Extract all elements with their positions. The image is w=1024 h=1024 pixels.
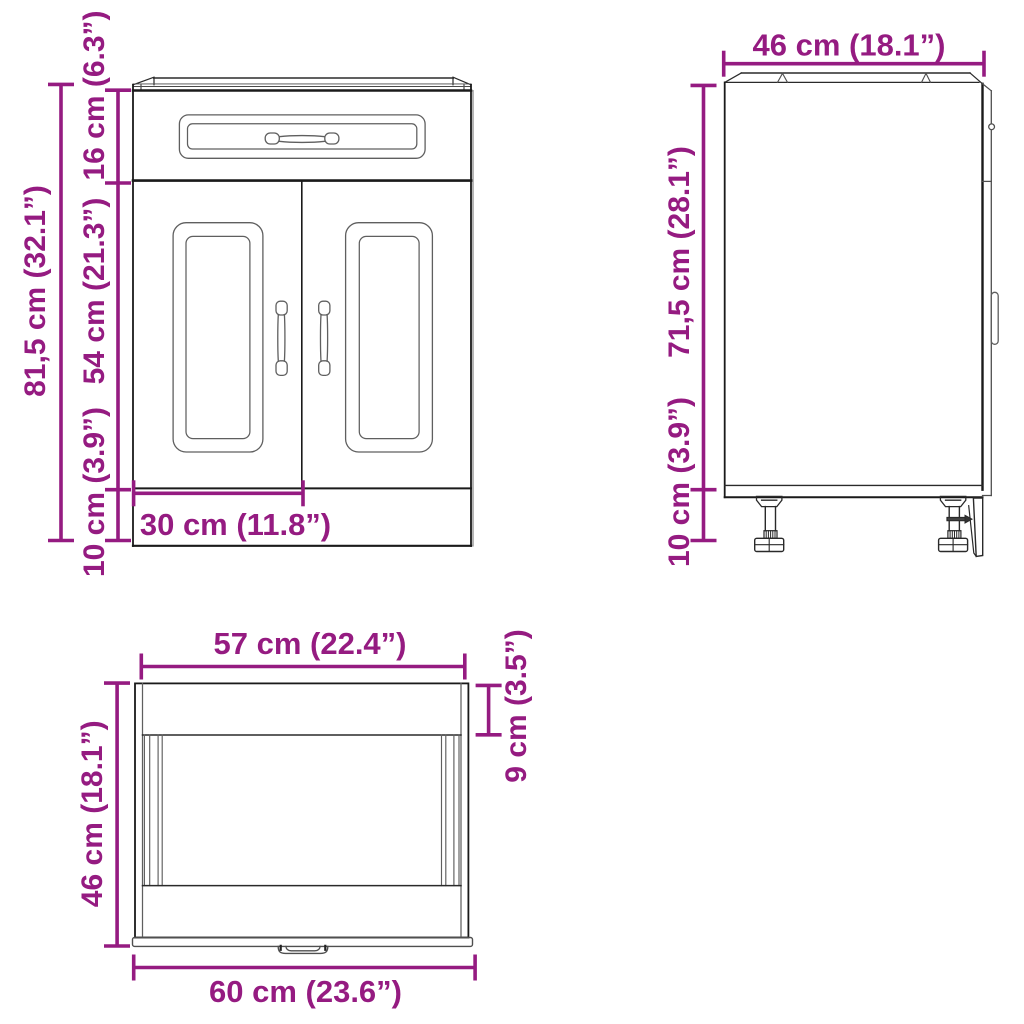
svg-text:30 cm (11.8”): 30 cm (11.8”) bbox=[140, 507, 331, 542]
svg-text:10 cm (3.9”): 10 cm (3.9”) bbox=[78, 407, 111, 577]
svg-text:57 cm (22.4”): 57 cm (22.4”) bbox=[214, 626, 407, 661]
svg-text:10 cm (3.9”): 10 cm (3.9”) bbox=[663, 397, 696, 567]
svg-text:9 cm (3.5”): 9 cm (3.5”) bbox=[500, 629, 533, 782]
svg-text:54 cm (21.3”): 54 cm (21.3”) bbox=[78, 198, 111, 385]
svg-text:46 cm (18.1”): 46 cm (18.1”) bbox=[753, 28, 946, 63]
svg-text:81,5 cm (32.1”): 81,5 cm (32.1”) bbox=[19, 185, 52, 397]
svg-text:71,5 cm (28.1”): 71,5 cm (28.1”) bbox=[663, 146, 696, 358]
svg-text:16 cm (6.3”): 16 cm (6.3”) bbox=[78, 10, 111, 180]
svg-text:46 cm (18.1”): 46 cm (18.1”) bbox=[76, 720, 109, 907]
svg-text:60 cm (23.6”): 60 cm (23.6”) bbox=[209, 974, 402, 1009]
